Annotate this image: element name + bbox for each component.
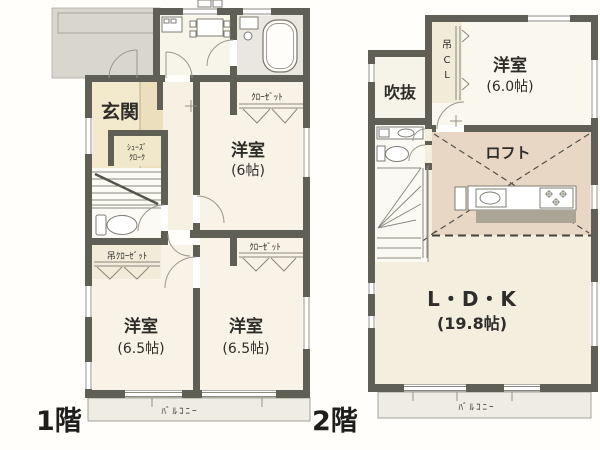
wall [368,50,432,57]
room-label-bedroom65-left: 洋室 [124,316,158,337]
toilet-tank [377,146,385,161]
wall [425,125,432,129]
room-size-bedroom60: (6.0帖) [486,79,533,95]
wall [92,238,164,245]
wall [368,50,375,392]
wash-cabinet [379,129,389,137]
bedroom65-right-floor [200,238,303,390]
bath-counter [240,17,258,29]
room-label-ldk: L・D・K [427,287,517,311]
room-label-bedroom6: 洋室 [231,140,265,161]
wall [425,15,598,22]
wall [190,230,310,238]
wall [161,130,168,205]
wall [190,75,310,82]
shoes-closet-label: ｼｭｰｽﾞ [127,143,147,152]
entrance-porch [52,8,160,78]
wall [85,390,310,398]
floor2-plan: 吊 C L 洋室 (6.0帖) 吹抜 ロフト L・D・K (19.8帖) ﾊﾞﾙ… [312,15,599,438]
floorplan-drawing: 玄関 ｸﾛｰｾﾞｯﾄ 洋室 (6帖) ｼｭｰｽﾞ ｸﾛｰｸ 吊ｸﾛｰｾﾞｯﾄ ｸ… [0,0,600,450]
wall [157,82,163,110]
wall [230,238,237,266]
room-label-bedroom60: 洋室 [493,55,527,76]
wall [193,82,200,195]
sink-basin [480,192,500,204]
room-size-bedroom6: (6帖) [231,163,265,179]
wall [193,288,200,398]
wall [425,15,432,125]
wall [230,82,237,115]
door-opening [193,195,200,223]
wall [153,75,165,82]
wash-basin [398,129,414,137]
floor1-balcony [88,398,310,421]
closet-label: ｸﾛｰｾﾞｯﾄ [251,92,283,103]
toilet-bowl [386,147,409,162]
floor1-plan: 玄関 ｸﾛｰｾﾞｯﾄ 洋室 (6帖) ｼｭｰｽﾞ ｸﾛｰｸ 吊ｸﾛｰｾﾞｯﾄ ｸ… [36,0,311,437]
toilet-tank [96,215,106,235]
wall [432,125,436,132]
hanging-closet-label: 吊ｸﾛｰｾﾞｯﾄ [107,251,148,262]
bathtub [263,20,297,72]
toilet-bowl [107,216,137,235]
hanging-cl-label: C [444,55,451,66]
room-size-bedroom65-left: (6.5帖) [117,341,164,357]
floorplan-canvas: 玄関 ｸﾛｰｾﾞｯﾄ 洋室 (6帖) ｼｭｰｽﾞ ｸﾛｰｸ 吊ｸﾛｰｾﾞｯﾄ ｸ… [0,0,600,450]
hanging-cl-label: 吊 [442,39,452,51]
counter-base [476,210,576,223]
wall [85,75,160,82]
door-opening [230,40,237,66]
room-size-bedroom65-right: (6.5帖) [222,341,269,357]
cut-fixture [213,0,222,7]
floor2-title: 2階 [312,406,358,437]
door-opening [436,125,464,132]
wall [153,8,160,82]
wall [108,130,114,166]
fridge-space [455,187,466,210]
wall [464,125,598,132]
stairwell-floor [375,165,428,262]
wall [108,130,165,136]
hanging-cl-label: L [444,70,450,81]
shower-drain [244,32,252,40]
wall [368,384,598,392]
cut-fixture [198,0,211,7]
balcony-label: ﾊﾞﾙｺﾆｰ [458,402,495,413]
door-opening [193,257,200,288]
room-label-void: 吹抜 [384,83,417,102]
balcony-label: ﾊﾞﾙｺﾆｰ [161,406,198,417]
floor1-title: 1階 [36,406,82,437]
shoes-closet-label: ｸﾛｰｸ [129,153,145,162]
room-label-bedroom65-right: 洋室 [229,316,263,337]
room-label-genkan: 玄関 [101,100,139,123]
room-size-ldk: (19.8帖) [437,314,507,333]
wall [193,245,200,257]
wall [368,118,432,125]
vanity-table [197,19,223,36]
door-opening [161,205,168,231]
closet-label: ｸﾛｰｾﾞｯﾄ [249,242,281,253]
room-label-loft: ロフト [485,144,530,162]
wall [425,141,432,145]
